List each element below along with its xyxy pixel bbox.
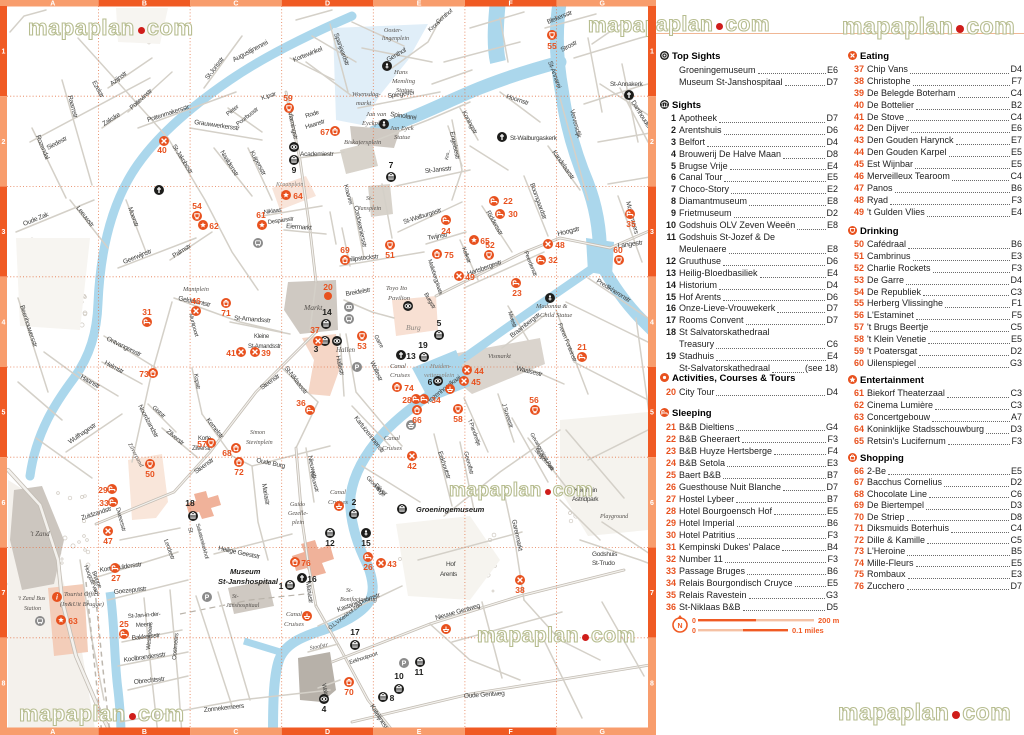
- svg-text:63: 63: [68, 616, 78, 626]
- svg-text:29: 29: [98, 485, 108, 495]
- svg-text:34: 34: [431, 395, 441, 405]
- svg-text:62: 62: [209, 221, 219, 231]
- svg-text:20: 20: [323, 282, 333, 292]
- svg-text:39: 39: [261, 348, 271, 358]
- svg-text:F: F: [508, 1, 513, 8]
- svg-text:Statue: Statue: [394, 134, 410, 141]
- svg-text:44: 44: [474, 366, 484, 376]
- svg-text:Playground: Playground: [599, 514, 629, 520]
- svg-text:P: P: [402, 661, 407, 668]
- svg-text:Madonna &: Madonna &: [535, 303, 569, 310]
- svg-text:24: 24: [441, 226, 451, 236]
- svg-text:2: 2: [650, 139, 654, 146]
- svg-text:C: C: [233, 1, 238, 8]
- svg-text:5: 5: [2, 410, 6, 417]
- svg-text:G: G: [599, 1, 605, 8]
- svg-text:Hallen: Hallen: [335, 346, 356, 354]
- svg-text:72: 72: [234, 467, 244, 477]
- svg-text:Gezelle-: Gezelle-: [288, 511, 308, 517]
- svg-text:47: 47: [103, 536, 113, 546]
- svg-text:16: 16: [307, 574, 317, 584]
- svg-text:Groeningemuseum: Groeningemuseum: [416, 505, 485, 514]
- svg-text:plein: plein: [291, 520, 304, 526]
- svg-text:Godshuis: Godshuis: [592, 551, 618, 558]
- svg-text:65: 65: [480, 236, 490, 246]
- svg-text:Canal: Canal: [286, 611, 302, 618]
- svg-text:5: 5: [437, 318, 442, 328]
- svg-text:Hans: Hans: [393, 69, 408, 76]
- svg-text:Kraanplein: Kraanplein: [275, 182, 303, 188]
- svg-text:D: D: [325, 729, 330, 735]
- svg-text:P: P: [355, 365, 360, 372]
- svg-text:18: 18: [185, 498, 195, 508]
- svg-text:Statue: Statue: [396, 87, 412, 94]
- svg-text:22: 22: [503, 196, 513, 206]
- svg-text:lingenplein: lingenplein: [382, 36, 409, 42]
- svg-text:A: A: [50, 1, 55, 8]
- svg-text:Academiestr: Academiestr: [300, 151, 334, 158]
- svg-text:37: 37: [310, 325, 320, 335]
- svg-text:Ooster-: Ooster-: [384, 28, 402, 34]
- svg-text:48: 48: [555, 240, 565, 250]
- svg-text:St-Annakerk: St-Annakerk: [610, 81, 644, 88]
- svg-text:76: 76: [301, 558, 311, 568]
- svg-text:13: 13: [406, 351, 416, 361]
- svg-text:200 m: 200 m: [818, 616, 839, 625]
- svg-text:0.1 miles: 0.1 miles: [792, 626, 824, 635]
- svg-text:71: 71: [221, 308, 231, 318]
- svg-text:St-Walburgaskerk: St-Walburgaskerk: [510, 135, 558, 142]
- svg-text:G: G: [599, 729, 605, 735]
- svg-text:E: E: [417, 729, 422, 735]
- svg-text:70: 70: [344, 687, 354, 697]
- svg-text:0: 0: [692, 618, 696, 625]
- svg-text:B: B: [142, 1, 147, 8]
- svg-text:4: 4: [322, 704, 327, 714]
- svg-text:66: 66: [412, 415, 422, 425]
- svg-text:Vismarkt: Vismarkt: [488, 353, 511, 360]
- svg-text:33: 33: [99, 498, 109, 508]
- svg-text:Muntplein: Muntplein: [182, 286, 209, 293]
- svg-text:6: 6: [650, 500, 654, 507]
- svg-text:6: 6: [2, 500, 6, 507]
- svg-text:St-: St-: [232, 594, 239, 600]
- svg-text:21: 21: [577, 342, 587, 352]
- svg-text:Guido: Guido: [290, 502, 305, 508]
- svg-text:32: 32: [548, 255, 558, 265]
- svg-text:3: 3: [650, 229, 654, 236]
- svg-text:Canal: Canal: [384, 435, 400, 442]
- svg-text:43: 43: [387, 559, 397, 569]
- svg-text:St-Janshospitaal: St-Janshospitaal: [218, 577, 279, 586]
- svg-text:4: 4: [650, 319, 654, 326]
- svg-text:Biskajersplein: Biskajersplein: [344, 139, 381, 146]
- svg-text:36: 36: [296, 398, 306, 408]
- svg-text:Hof: Hof: [446, 561, 456, 568]
- svg-text:B: B: [142, 729, 147, 735]
- svg-text:1: 1: [2, 49, 6, 56]
- svg-text:23: 23: [512, 288, 522, 298]
- svg-text:7: 7: [650, 590, 654, 597]
- svg-text:Toyo Ito: Toyo Ito: [386, 285, 408, 292]
- svg-text:61: 61: [256, 210, 266, 220]
- svg-text:17: 17: [350, 627, 360, 637]
- svg-text:59: 59: [283, 93, 293, 103]
- svg-text:28: 28: [402, 395, 412, 405]
- svg-text:1: 1: [650, 49, 654, 56]
- svg-text:35: 35: [626, 219, 636, 229]
- svg-text:14: 14: [322, 307, 332, 317]
- svg-text:7: 7: [389, 160, 394, 170]
- svg-text:56: 56: [529, 395, 539, 405]
- svg-text:2: 2: [352, 497, 357, 507]
- svg-text:Cruises: Cruises: [382, 445, 402, 452]
- svg-text:49: 49: [465, 272, 475, 282]
- svg-text:15: 15: [361, 538, 371, 548]
- svg-text:P: P: [205, 595, 210, 602]
- svg-text:57: 57: [197, 439, 207, 449]
- svg-text:7: 7: [2, 590, 6, 597]
- svg-text:Memling: Memling: [391, 78, 416, 85]
- svg-text:Cruises: Cruises: [284, 621, 304, 628]
- svg-text:D: D: [325, 1, 330, 8]
- svg-text:Woensdag-: Woensdag-: [352, 91, 381, 98]
- svg-text:(In&Uit Brugge): (In&Uit Brugge): [60, 601, 104, 608]
- svg-text:6: 6: [428, 377, 433, 387]
- svg-text:Simon: Simon: [250, 430, 265, 436]
- svg-text:74: 74: [404, 383, 414, 393]
- svg-text:42: 42: [407, 461, 417, 471]
- svg-text:'t Zand: 't Zand: [30, 530, 50, 538]
- svg-text:41: 41: [226, 348, 236, 358]
- svg-text:75: 75: [444, 250, 454, 260]
- svg-text:60: 60: [613, 245, 623, 255]
- svg-text:Kleine: Kleine: [254, 334, 270, 340]
- svg-text:8: 8: [2, 680, 6, 687]
- svg-text:19: 19: [418, 340, 428, 350]
- svg-text:0: 0: [692, 628, 696, 635]
- svg-text:E: E: [417, 1, 422, 8]
- svg-text:30: 30: [508, 209, 518, 219]
- svg-text:'t Zand Bus: 't Zand Bus: [18, 596, 46, 602]
- svg-text:A: A: [50, 729, 55, 735]
- svg-text:58: 58: [453, 414, 463, 424]
- svg-text:Pavilion: Pavilion: [387, 295, 410, 302]
- svg-text:Huiden-: Huiden-: [429, 363, 451, 370]
- svg-text:50: 50: [145, 469, 155, 479]
- svg-text:31: 31: [142, 307, 152, 317]
- svg-text:Jan Eyck: Jan Eyck: [390, 125, 414, 132]
- svg-text:Janshospitaal: Janshospitaal: [226, 603, 260, 609]
- svg-text:25: 25: [119, 619, 129, 629]
- svg-text:68: 68: [222, 448, 232, 458]
- svg-text:Burg: Burg: [406, 323, 421, 332]
- svg-text:Museum: Museum: [230, 567, 261, 576]
- svg-text:C: C: [233, 729, 238, 735]
- svg-text:10: 10: [394, 671, 404, 681]
- svg-text:45: 45: [471, 377, 481, 387]
- svg-text:St-: St-: [346, 588, 353, 594]
- svg-text:Jansplein: Jansplein: [358, 206, 381, 212]
- svg-text:Canal: Canal: [390, 363, 406, 370]
- svg-text:2: 2: [2, 139, 6, 146]
- svg-text:Arents: Arents: [440, 571, 458, 578]
- svg-text:4: 4: [2, 319, 6, 326]
- svg-text:8: 8: [650, 680, 654, 687]
- svg-text:73: 73: [139, 369, 149, 379]
- svg-text:54: 54: [192, 201, 202, 211]
- svg-text:St-Trudo: St-Trudo: [592, 560, 615, 567]
- svg-text:Station: Station: [24, 606, 41, 612]
- svg-text:12: 12: [325, 538, 335, 548]
- svg-text:Child Statue: Child Statue: [540, 312, 572, 319]
- svg-text:3: 3: [2, 229, 6, 236]
- svg-text:F: F: [508, 729, 513, 735]
- svg-text:markt: markt: [356, 100, 371, 107]
- svg-text:5: 5: [650, 410, 654, 417]
- svg-text:69: 69: [340, 245, 350, 255]
- svg-text:1: 1: [279, 581, 284, 591]
- svg-text:Stevinplein: Stevinplein: [246, 440, 273, 446]
- svg-text:8: 8: [390, 693, 395, 703]
- svg-text:67: 67: [320, 127, 330, 137]
- svg-text:64: 64: [293, 191, 303, 201]
- svg-text:Canal: Canal: [330, 489, 346, 496]
- svg-text:11: 11: [415, 667, 424, 677]
- svg-text:9: 9: [292, 165, 297, 175]
- svg-text:46: 46: [191, 296, 201, 306]
- svg-text:Markt: Markt: [303, 303, 323, 312]
- svg-text:Cruises: Cruises: [390, 372, 410, 379]
- svg-text:40: 40: [157, 145, 167, 155]
- svg-text:38: 38: [515, 585, 525, 595]
- svg-text:51: 51: [385, 250, 395, 260]
- svg-text:Jan van: Jan van: [366, 111, 386, 118]
- svg-text:N: N: [677, 623, 682, 630]
- svg-text:27: 27: [111, 573, 121, 583]
- svg-text:53: 53: [357, 341, 367, 351]
- svg-text:26: 26: [363, 562, 373, 572]
- svg-text:St-: St-: [366, 196, 373, 202]
- svg-text:55: 55: [547, 41, 557, 51]
